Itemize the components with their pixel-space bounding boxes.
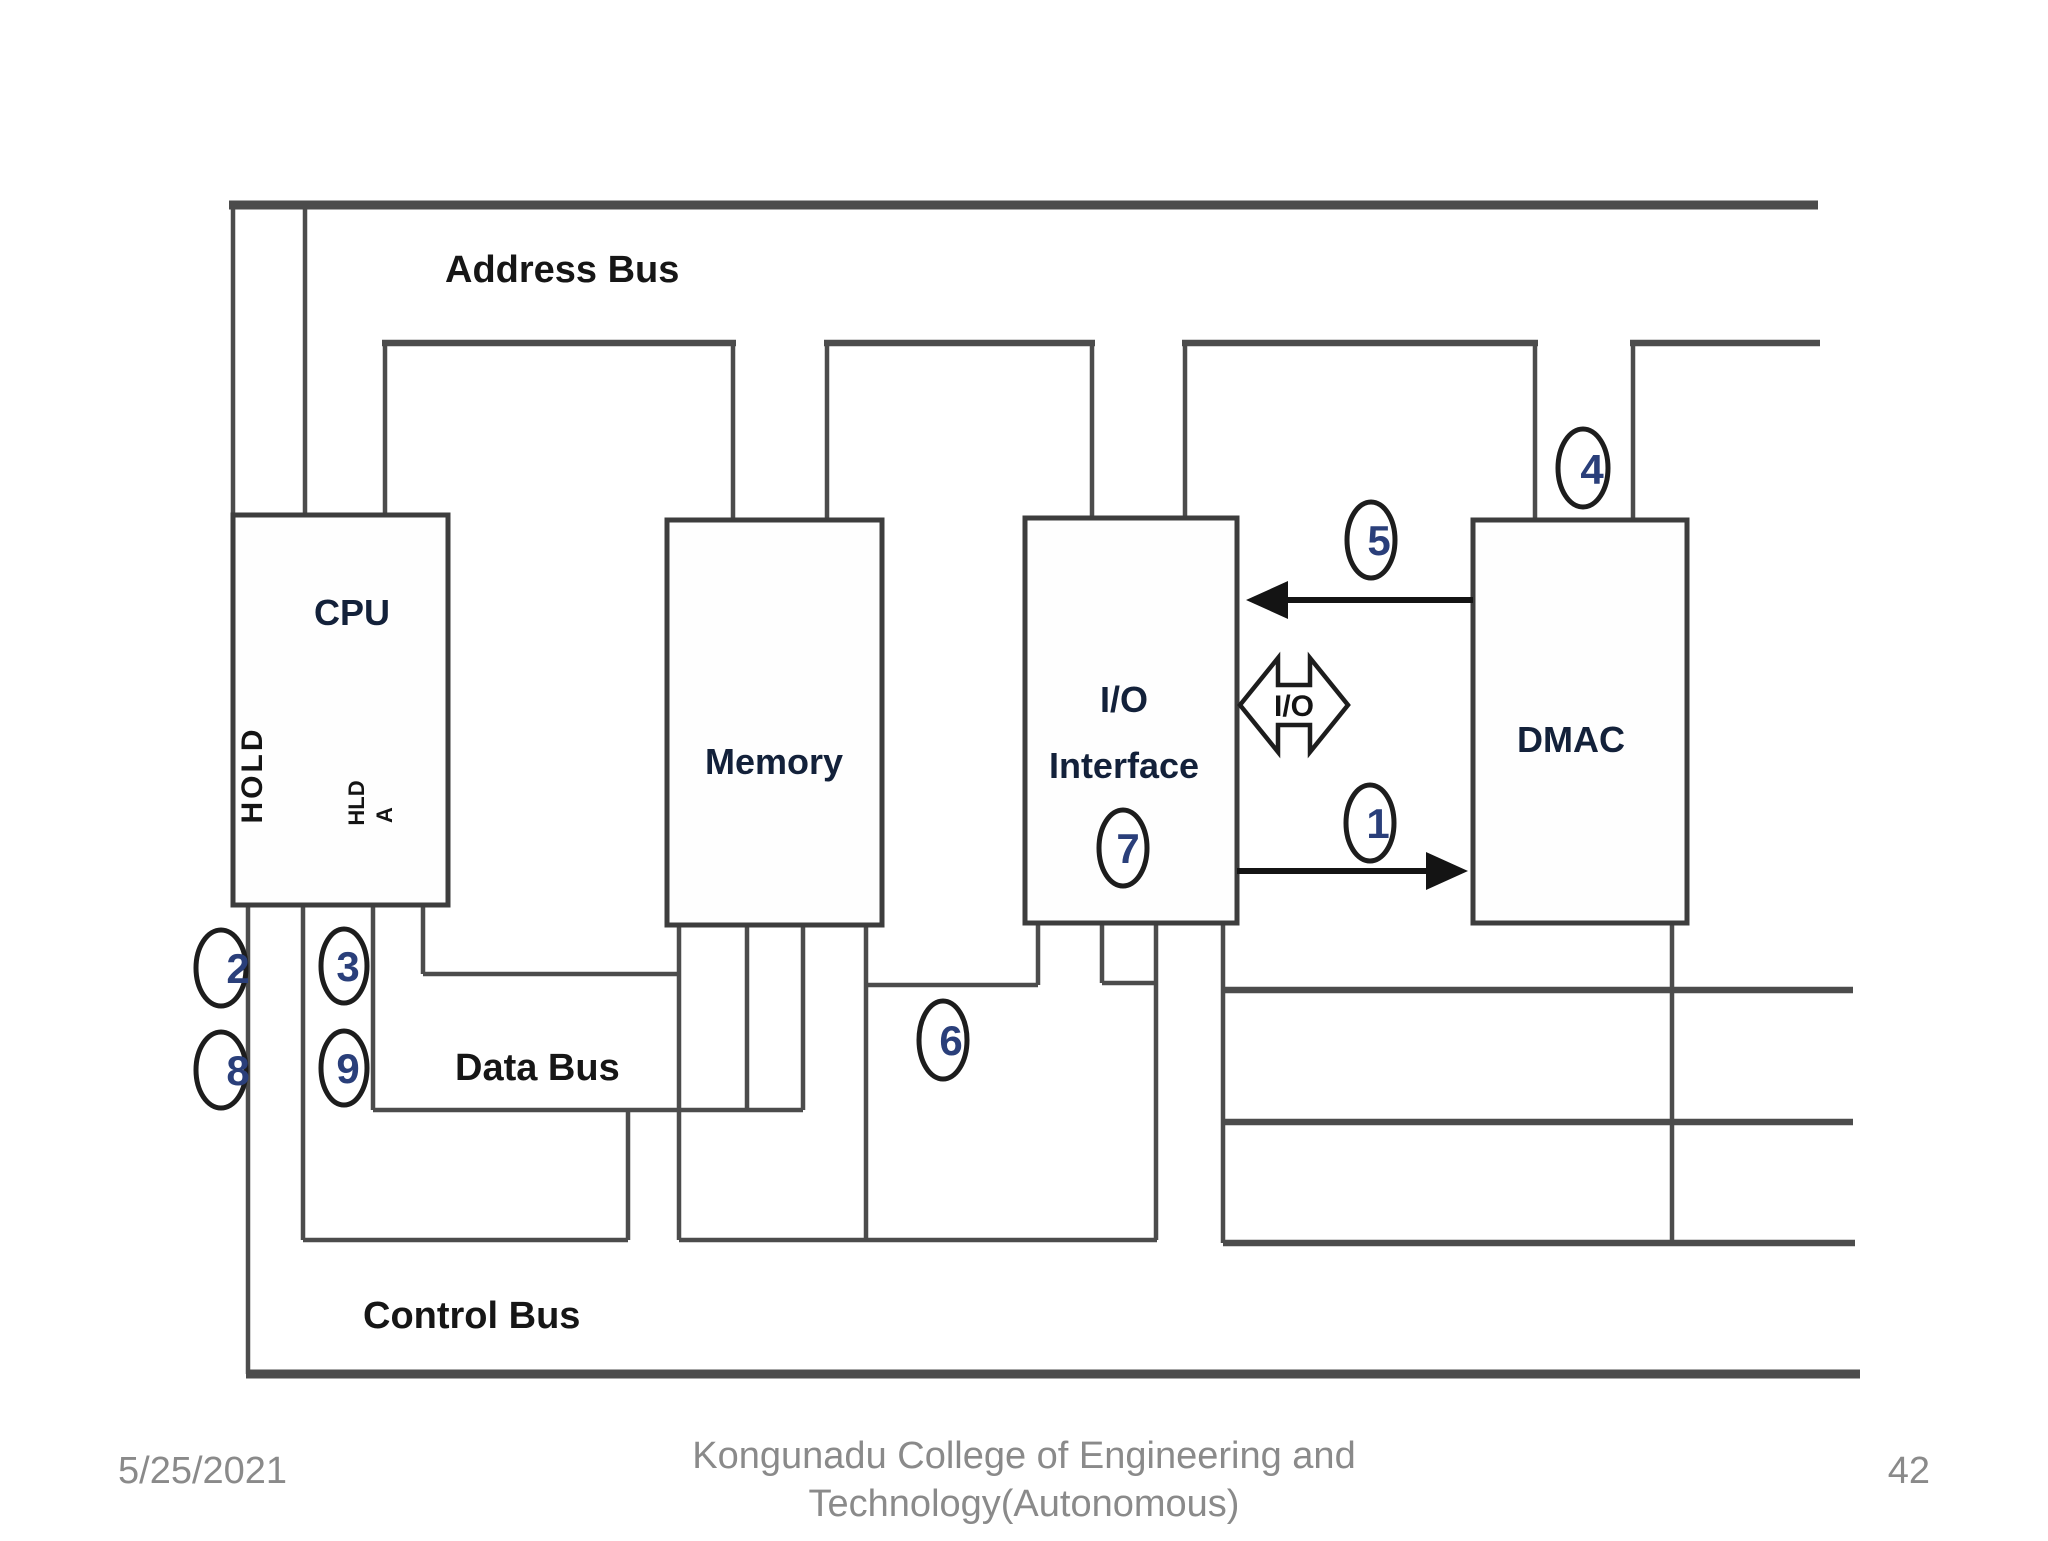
dmac-to-io-arrow bbox=[1246, 581, 1473, 619]
step-circle-3: 3 bbox=[321, 929, 367, 1003]
step-circle-4: 4 bbox=[1558, 429, 1608, 507]
io-to-dmac-arrow bbox=[1237, 852, 1468, 890]
footer-institution: Kongunadu College of Engineering and Tec… bbox=[524, 1432, 1524, 1528]
data-bus-label: Data Bus bbox=[455, 1047, 620, 1089]
cpu-label: CPU bbox=[314, 592, 390, 633]
memory-label: Memory bbox=[705, 741, 843, 782]
svg-text:8: 8 bbox=[226, 1047, 249, 1094]
svg-text:9: 9 bbox=[336, 1045, 359, 1092]
step-circle-7: 7 bbox=[1099, 810, 1147, 886]
svg-text:7: 7 bbox=[1116, 825, 1139, 872]
svg-text:5: 5 bbox=[1367, 517, 1390, 564]
footer-page-number: 42 bbox=[1888, 1450, 1930, 1493]
step-circle-8: 8 bbox=[196, 1032, 250, 1108]
step-circle-5: 5 bbox=[1347, 502, 1395, 578]
footer-date: 5/25/2021 bbox=[118, 1450, 287, 1493]
step-circle-6: 6 bbox=[919, 1001, 967, 1079]
cpu-hlda-signal-label: HLD bbox=[344, 780, 369, 825]
address-bus-label: Address Bus bbox=[445, 249, 679, 291]
footer-institution-line2: Technology(Autonomous) bbox=[524, 1480, 1524, 1528]
dma-block-diagram: CPU Memory I/O Interface DMAC HOLD HLD A… bbox=[0, 0, 2048, 1536]
cpu-hold-signal-label: HOLD bbox=[236, 727, 269, 824]
step-circle-2: 2 bbox=[196, 930, 250, 1006]
io-interface-label-line2: Interface bbox=[1049, 745, 1199, 786]
control-bus-label: Control Bus bbox=[363, 1295, 580, 1337]
io-transfer-arrow-label: I/O bbox=[1274, 690, 1314, 723]
svg-text:1: 1 bbox=[1366, 800, 1389, 847]
svg-text:4: 4 bbox=[1580, 446, 1604, 493]
footer-institution-line1: Kongunadu College of Engineering and bbox=[524, 1432, 1524, 1480]
cpu-block bbox=[233, 515, 448, 905]
svg-text:6: 6 bbox=[939, 1017, 962, 1064]
memory-block bbox=[667, 520, 882, 925]
slide: CPU Memory I/O Interface DMAC HOLD HLD A… bbox=[0, 0, 2048, 1536]
step-circle-9: 9 bbox=[321, 1031, 367, 1105]
dmac-label: DMAC bbox=[1517, 719, 1625, 760]
io-transfer-double-arrow: I/O bbox=[1240, 658, 1348, 752]
svg-text:3: 3 bbox=[336, 943, 359, 990]
io-interface-label-line1: I/O bbox=[1100, 679, 1148, 720]
svg-text:2: 2 bbox=[226, 945, 249, 992]
cpu-hlda-signal-label-a: A bbox=[372, 807, 397, 823]
step-circle-1: 1 bbox=[1346, 785, 1394, 861]
